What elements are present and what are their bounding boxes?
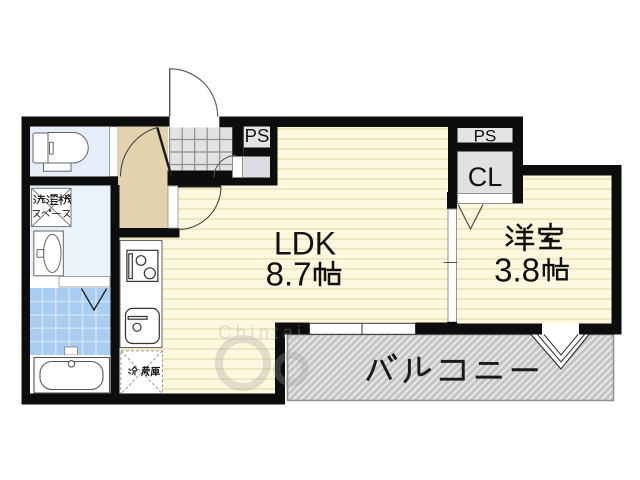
svg-text:PS: PS bbox=[474, 127, 497, 146]
svg-text:3.8: 3.8 bbox=[494, 252, 540, 289]
svg-text:8.7: 8.7 bbox=[266, 256, 312, 293]
svg-text:CL: CL bbox=[468, 162, 503, 192]
svg-text:PS: PS bbox=[245, 125, 270, 146]
